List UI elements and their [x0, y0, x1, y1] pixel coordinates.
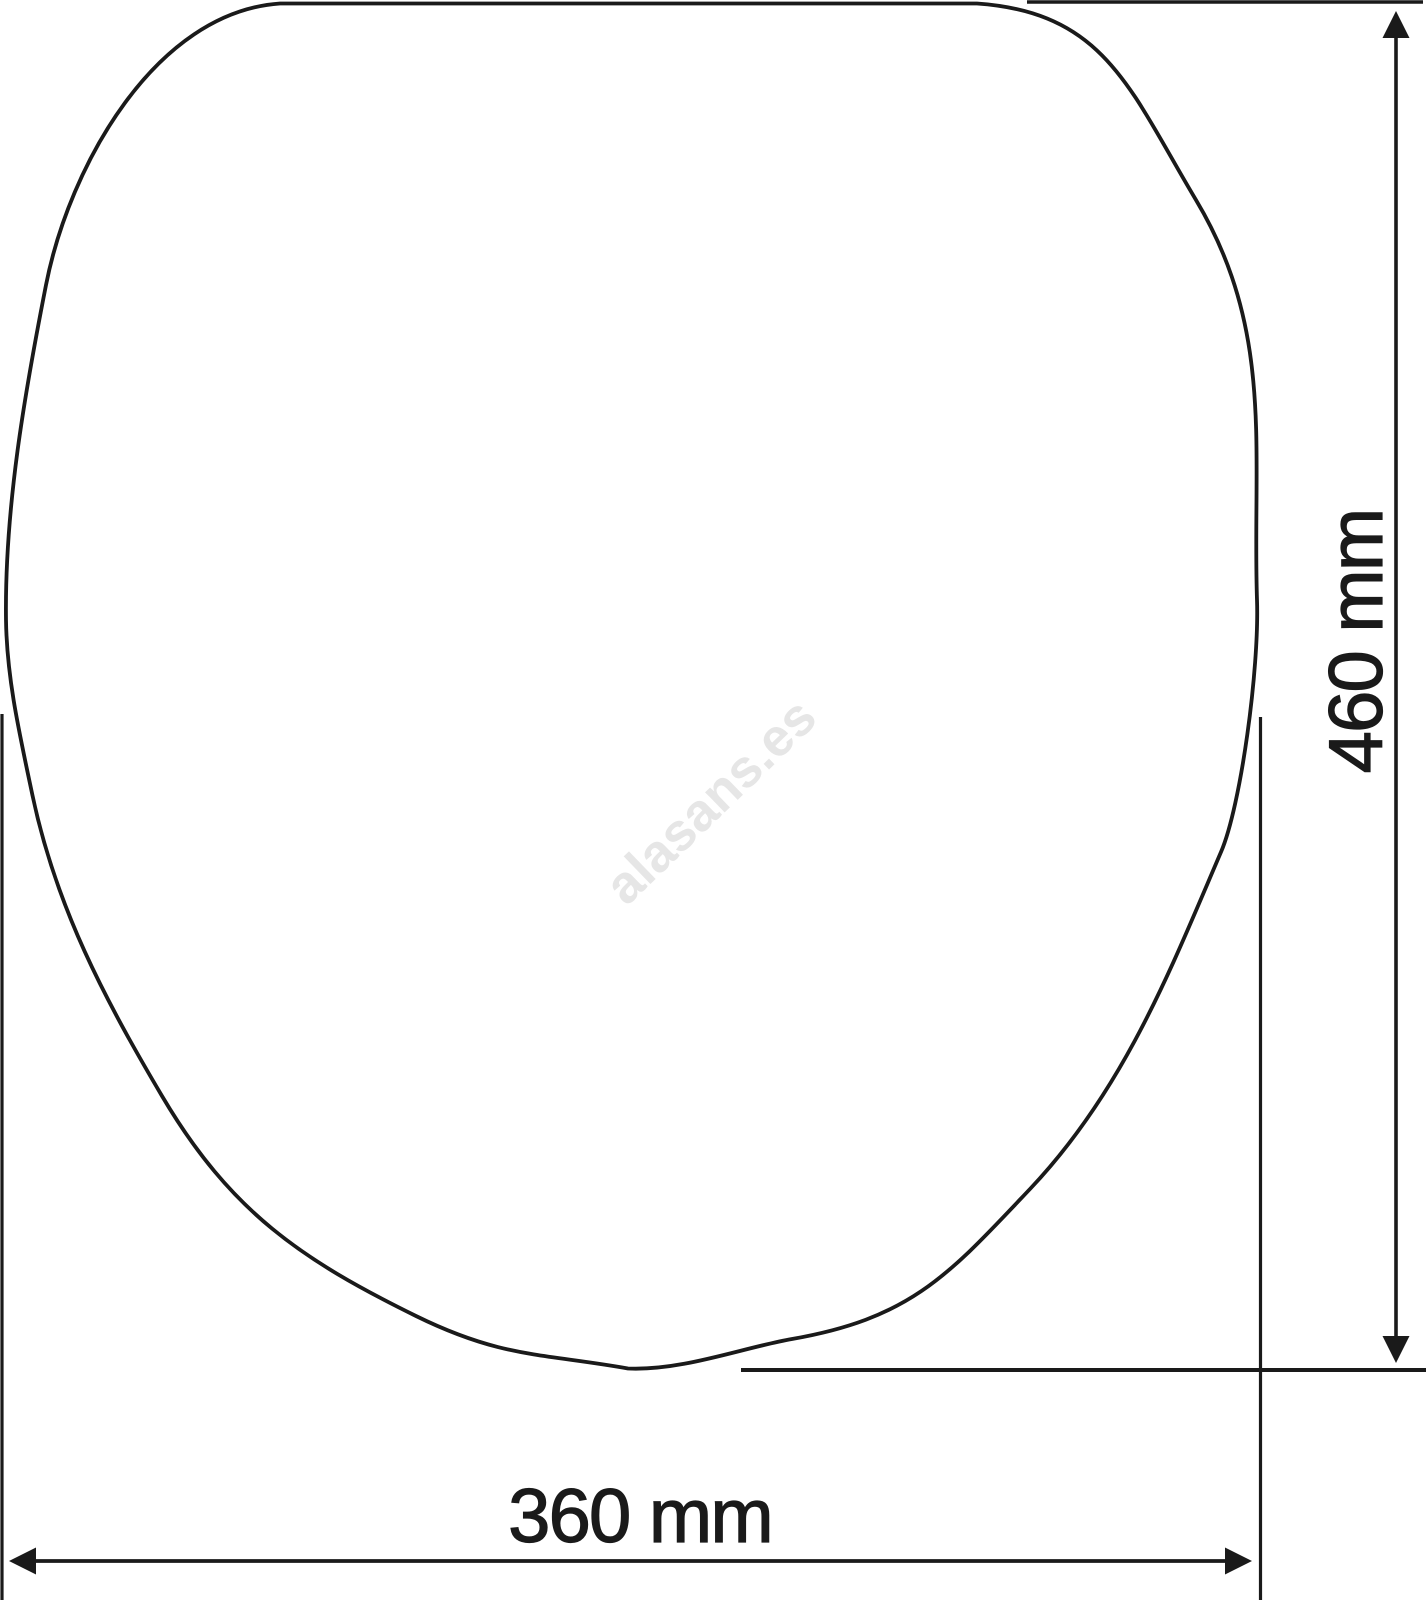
svg-text:alasans.es: alasans.es [594, 687, 828, 916]
svg-text:360 mm: 360 mm [508, 1474, 772, 1559]
svg-text:460 mm: 460 mm [1314, 510, 1399, 774]
